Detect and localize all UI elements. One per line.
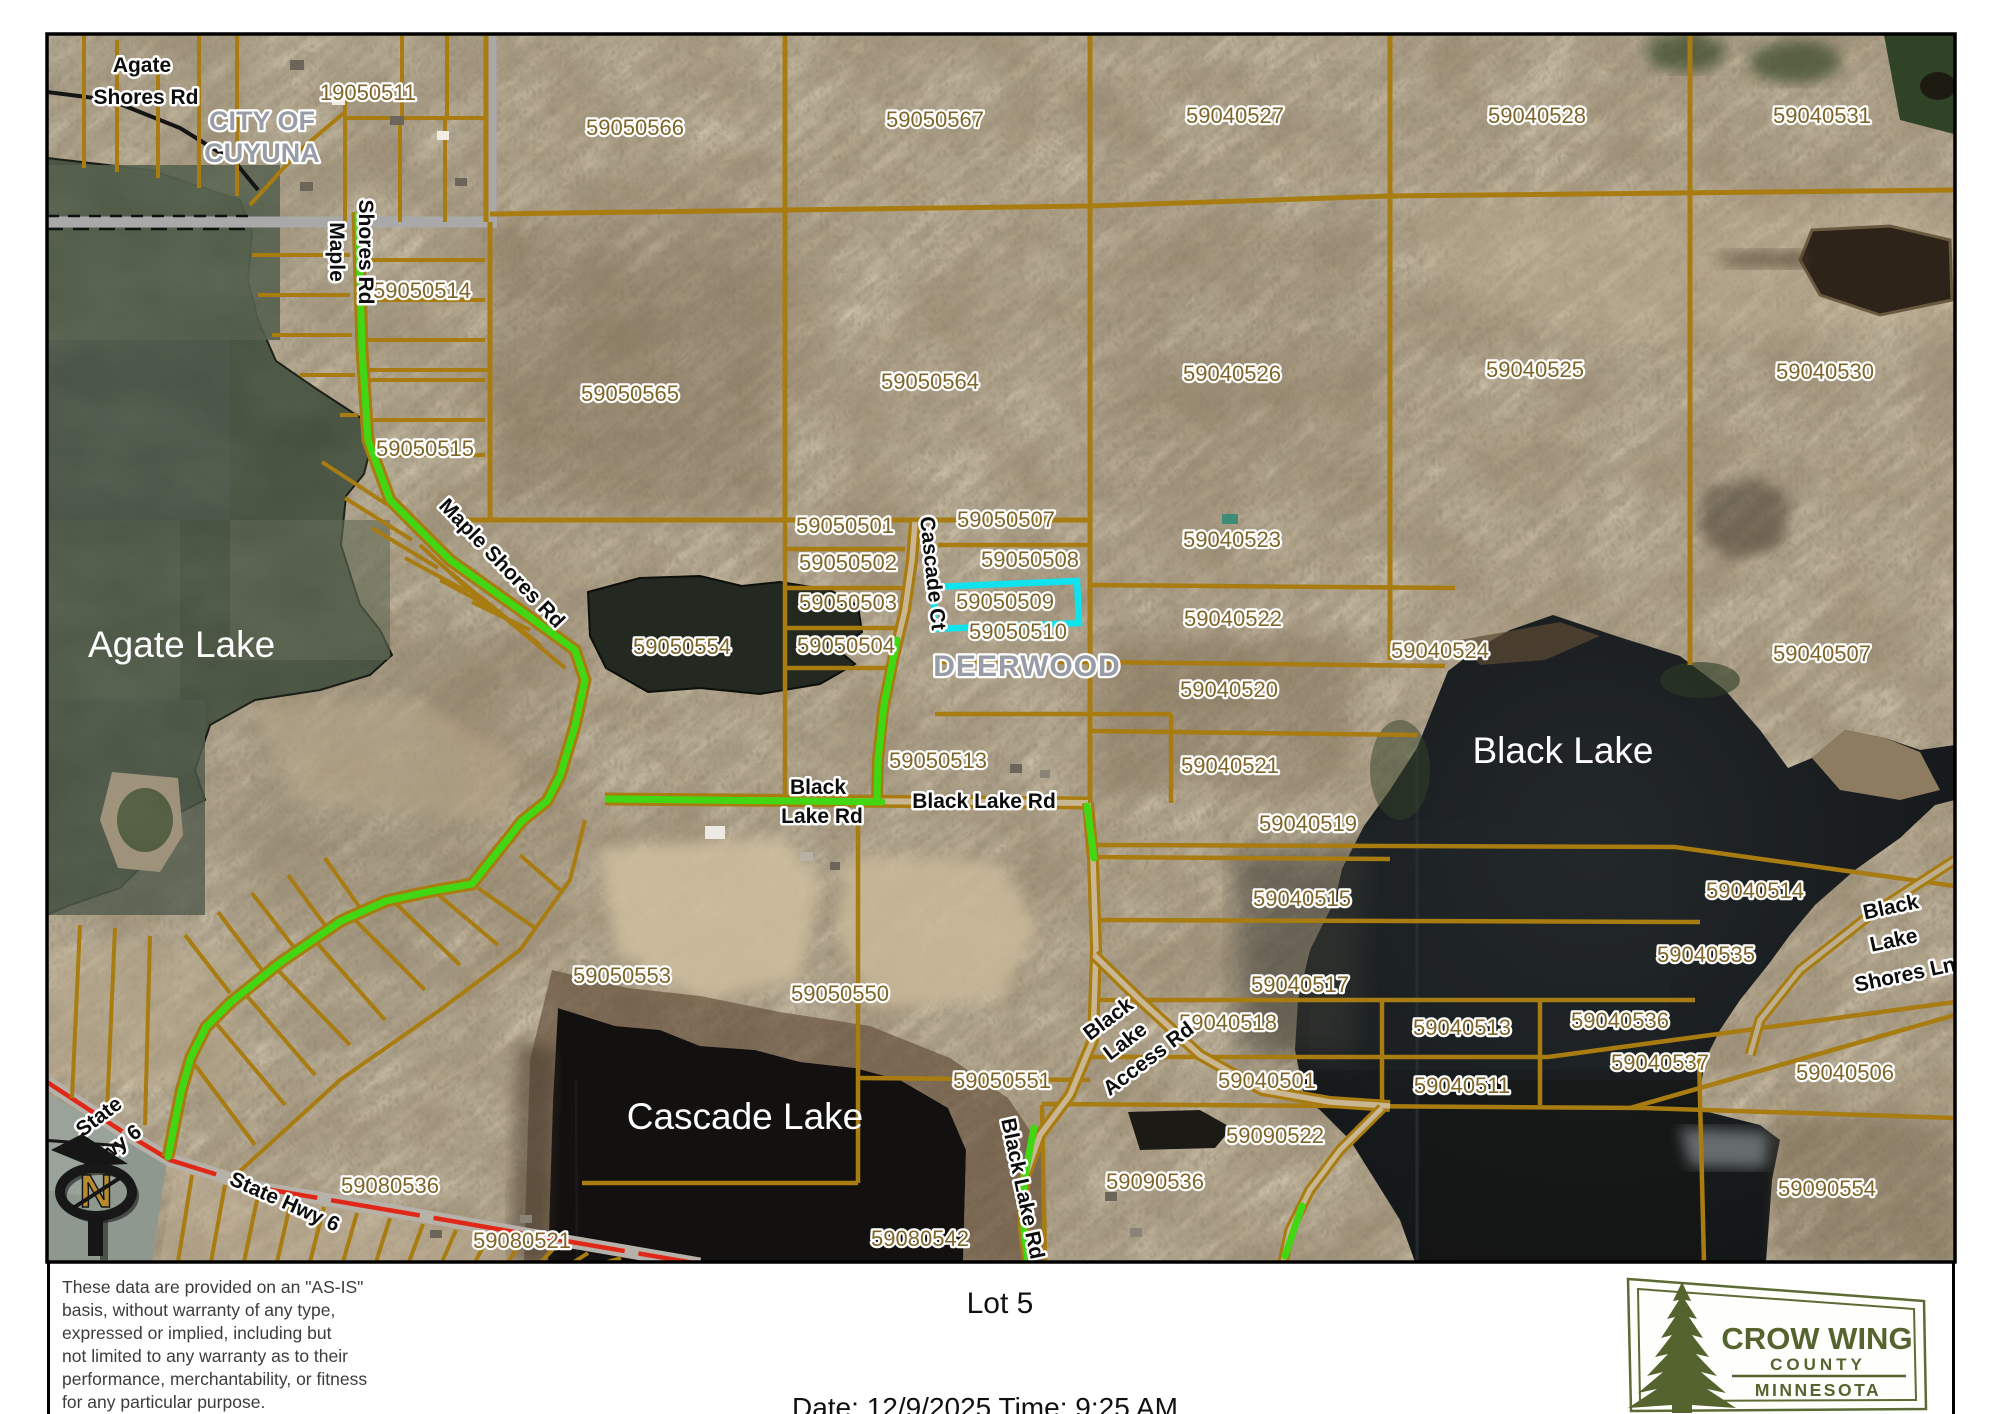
svg-text:Maple: Maple xyxy=(325,222,348,282)
svg-text:59040515: 59040515 xyxy=(1253,886,1351,911)
svg-text:19050511: 19050511 xyxy=(320,80,416,105)
svg-text:59040525: 59040525 xyxy=(1486,357,1584,382)
svg-text:59040514: 59040514 xyxy=(1706,878,1804,903)
svg-text:59040522: 59040522 xyxy=(1184,606,1282,631)
svg-text:Black Lake: Black Lake xyxy=(1473,730,1654,771)
svg-text:59040511: 59040511 xyxy=(1414,1073,1510,1098)
svg-text:Date: 12/9/2025 Time: 9:25 A: Date: 12/9/2025 Time: 9:25 AM xyxy=(792,1392,1178,1414)
svg-text:59090522: 59090522 xyxy=(1226,1123,1324,1148)
svg-text:Agate: Agate xyxy=(113,54,171,77)
svg-text:59050502: 59050502 xyxy=(799,550,897,575)
svg-text:59080542: 59080542 xyxy=(871,1226,969,1251)
svg-text:CROW WING: CROW WING xyxy=(1721,1321,1912,1356)
svg-text:59040506: 59040506 xyxy=(1796,1060,1894,1085)
svg-text:59040517: 59040517 xyxy=(1251,972,1349,997)
svg-text:59080521: 59080521 xyxy=(473,1228,571,1253)
svg-text:59040507: 59040507 xyxy=(1773,641,1871,666)
svg-text:59050507: 59050507 xyxy=(957,507,1055,532)
svg-text:59040501: 59040501 xyxy=(1218,1068,1316,1093)
svg-text:CITY OF: CITY OF xyxy=(209,106,315,136)
svg-text:not limited to any warranty as: not limited to any warranty as to their xyxy=(62,1346,348,1366)
svg-text:59050504: 59050504 xyxy=(797,633,895,658)
svg-text:59040535: 59040535 xyxy=(1657,942,1755,967)
svg-text:59090536: 59090536 xyxy=(1106,1169,1204,1194)
svg-text:59090554: 59090554 xyxy=(1778,1176,1876,1201)
svg-text:59040519: 59040519 xyxy=(1259,811,1357,836)
svg-text:59050554: 59050554 xyxy=(633,634,731,659)
svg-text:Agate Lake: Agate Lake xyxy=(88,624,275,665)
svg-text:59040531: 59040531 xyxy=(1773,103,1871,128)
svg-text:59040524: 59040524 xyxy=(1391,638,1489,663)
svg-text:59050513: 59050513 xyxy=(889,748,987,773)
svg-text:59050566: 59050566 xyxy=(586,115,684,140)
svg-text:59050551: 59050551 xyxy=(953,1068,1051,1093)
svg-text:59040530: 59040530 xyxy=(1776,359,1874,384)
svg-text:CUYUNA: CUYUNA xyxy=(204,138,320,168)
svg-text:COUNTY: COUNTY xyxy=(1770,1355,1866,1374)
svg-text:59050550: 59050550 xyxy=(791,981,889,1006)
svg-text:for any particular purpose.: for any particular purpose. xyxy=(62,1392,265,1412)
svg-text:Black Lake Rd: Black Lake Rd xyxy=(912,790,1056,813)
svg-text:59050553: 59050553 xyxy=(573,963,671,988)
svg-text:59080536: 59080536 xyxy=(341,1173,439,1198)
svg-text:Black: Black xyxy=(790,776,846,799)
svg-text:Cascade Lake: Cascade Lake xyxy=(627,1096,864,1137)
svg-text:59050503: 59050503 xyxy=(799,590,897,615)
svg-text:performance, merchantability,: performance, merchantability, or fitness xyxy=(62,1369,367,1389)
svg-text:59040513: 59040513 xyxy=(1413,1015,1511,1040)
svg-text:59050501: 59050501 xyxy=(796,513,894,538)
svg-text:59040521: 59040521 xyxy=(1181,753,1279,778)
svg-text:59050567: 59050567 xyxy=(886,107,984,132)
svg-text:expressed or implied, includin: expressed or implied, including but xyxy=(62,1323,332,1343)
svg-text:59050510: 59050510 xyxy=(969,619,1067,644)
svg-text:Lot 5: Lot 5 xyxy=(967,1287,1034,1320)
svg-text:basis, without warranty of any: basis, without warranty of any type, xyxy=(62,1300,335,1320)
svg-text:59050515: 59050515 xyxy=(376,436,474,461)
svg-text:MINNESOTA: MINNESOTA xyxy=(1755,1380,1881,1400)
svg-text:59050508: 59050508 xyxy=(981,547,1079,572)
svg-text:59040527: 59040527 xyxy=(1186,103,1284,128)
svg-text:59050564: 59050564 xyxy=(881,369,979,394)
svg-text:59040537: 59040537 xyxy=(1611,1050,1709,1075)
svg-text:59050514: 59050514 xyxy=(373,278,471,303)
svg-text:59040536: 59040536 xyxy=(1571,1008,1669,1033)
svg-text:59040520: 59040520 xyxy=(1180,677,1278,702)
svg-text:DEERWOOD: DEERWOOD xyxy=(933,650,1120,683)
svg-text:Lake Rd: Lake Rd xyxy=(781,805,863,828)
svg-text:These data are provided on an: These data are provided on an "AS-IS" xyxy=(62,1277,363,1297)
svg-text:59050565: 59050565 xyxy=(581,381,679,406)
svg-text:59050509: 59050509 xyxy=(956,589,1054,614)
svg-text:Shores Rd: Shores Rd xyxy=(354,199,377,304)
svg-text:Shores Rd: Shores Rd xyxy=(93,86,198,109)
svg-text:59040526: 59040526 xyxy=(1183,361,1281,386)
svg-text:59040528: 59040528 xyxy=(1488,103,1586,128)
svg-text:59040523: 59040523 xyxy=(1183,527,1281,552)
